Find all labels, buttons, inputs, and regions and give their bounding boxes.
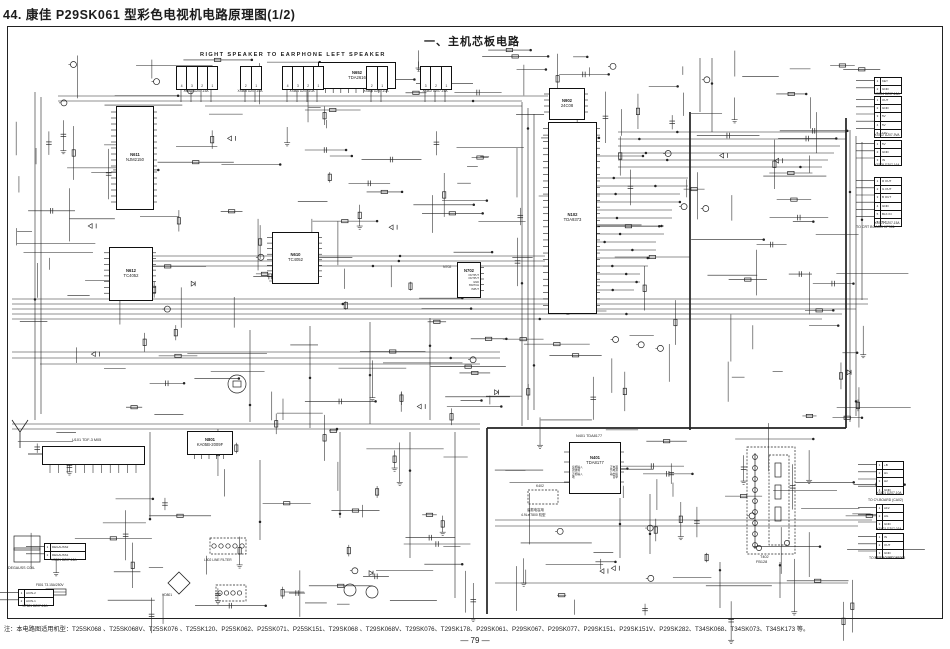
models-footnote: 注：本电路图适用机型：T25SK068 、T25SK068V、T25SK076 … bbox=[4, 624, 946, 633]
page-title: 44. 康佳 P29SK061 型彩色电视机电路原理图(1/2) bbox=[3, 4, 295, 23]
page-number: — 79 — bbox=[0, 636, 950, 645]
schematic-frame bbox=[7, 26, 943, 619]
schematic-sheet: 44. 康佳 P29SK061 型彩色电视机电路原理图(1/2) 一、主机芯板电… bbox=[0, 0, 950, 649]
